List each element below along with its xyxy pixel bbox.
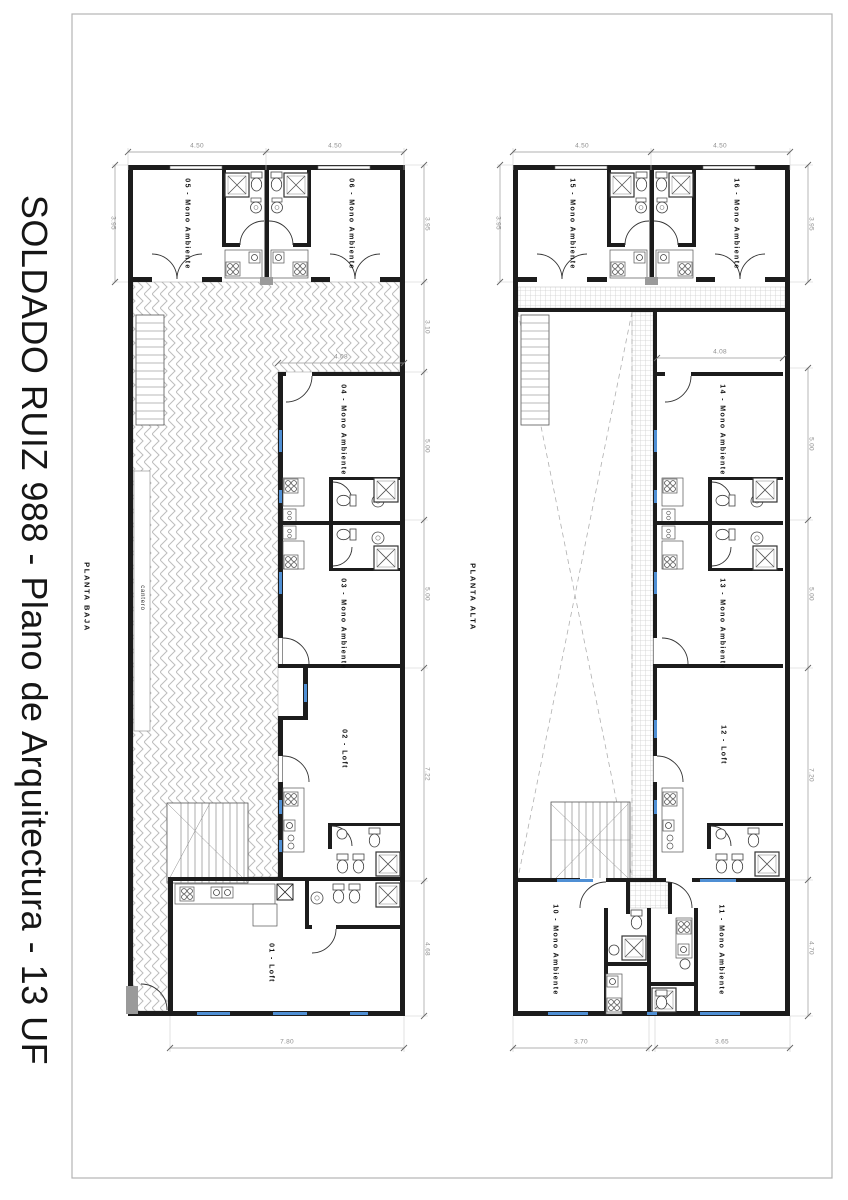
unit-01-label: 01 - Loft — [268, 943, 275, 983]
dim-alta-bottom-2: 3.65 — [715, 1039, 729, 1046]
unit-11-label: 11 - Mono Ambiente — [718, 904, 725, 995]
dim-alta-right-2: 5.00 — [808, 437, 815, 451]
courtyard-stair — [167, 803, 248, 883]
unit-04-label: 04 - Mono Ambiente — [340, 384, 347, 475]
window — [703, 166, 755, 169]
planta-baja-label: PLANTA BAJA — [83, 562, 92, 632]
dim-unit14-width: 4.08 — [713, 349, 727, 356]
unit-12-label: 12 - Loft — [720, 725, 727, 765]
dim-baja-bottom: 7.80 — [280, 1039, 294, 1046]
dim-baja-right-6: 4.68 — [424, 942, 431, 956]
dim-alta-bottom-1: 3.70 — [574, 1039, 588, 1046]
window — [555, 166, 607, 169]
upper-stair — [551, 802, 630, 880]
vestibule-tiles — [630, 882, 668, 908]
door-arc — [283, 756, 309, 782]
planta-baja-plan — [112, 148, 428, 1052]
dim-alta-left: 3.95 — [495, 216, 502, 230]
dim-alta-right-3: 5.00 — [808, 587, 815, 601]
planta-alta-label: PLANTA ALTA — [469, 563, 478, 631]
unit-14-label: 14 - Mono Ambiente — [719, 384, 726, 475]
unit-02-label: 02 - Loft — [341, 729, 348, 769]
corridor-tiles — [632, 312, 653, 878]
dim-baja-right-1: 3.95 — [424, 217, 431, 231]
dim-unit04-width: 4.08 — [334, 354, 348, 361]
dim-alta-top-1: 4.50 — [575, 143, 589, 150]
dim-baja-right-4: 5.00 — [424, 587, 431, 601]
window — [170, 166, 222, 169]
dim-baja-left: 3.95 — [110, 216, 117, 230]
dim-alta-top-2: 4.50 — [713, 143, 727, 150]
dim-alta-right-5: 4.70 — [808, 941, 815, 955]
drawing-sheet: { "title": "SOLDADO RUIZ 988 - Plano de … — [0, 0, 848, 1200]
dim-baja-top-2: 4.50 — [328, 143, 342, 150]
entrance-pillar — [126, 986, 138, 1014]
door-gap — [654, 638, 658, 664]
window — [318, 166, 370, 169]
door-gap — [279, 638, 283, 664]
dim-baja-right-2: 3.10 — [424, 320, 431, 334]
unit-03-label: 03 - Mono Ambiente — [340, 578, 347, 669]
cantero-label: cantero — [139, 585, 145, 611]
dim-baja-top-1: 4.50 — [190, 143, 204, 150]
dim-alta-right-1: 3.95 — [808, 217, 815, 231]
dim-baja-right-5: 7.22 — [424, 767, 431, 781]
door-gap — [654, 756, 658, 782]
unit01-interior — [175, 883, 400, 953]
unit-15-label: 15 - Mono Ambiente — [569, 178, 576, 269]
unit-10-label: 10 - Mono Ambiente — [552, 904, 559, 995]
unit-13-label: 13 - Mono Ambiente — [719, 578, 726, 669]
walkway-tiles — [518, 287, 785, 308]
door-gap — [279, 756, 283, 782]
unit-05-label: 05 - Mono Ambiente — [184, 178, 191, 269]
sheet-title: SOLDADO RUIZ 988 - Plano de Arquitectura… — [13, 195, 55, 1065]
door-arc — [657, 756, 683, 782]
unit-16-label: 16 - Mono Ambiente — [733, 178, 740, 269]
dim-alta-right-4: 7.20 — [808, 768, 815, 782]
planta-alta-plan — [497, 148, 813, 1052]
unit-06-label: 06 - Mono Ambiente — [348, 178, 355, 269]
dim-baja-right-3: 5.00 — [424, 439, 431, 453]
